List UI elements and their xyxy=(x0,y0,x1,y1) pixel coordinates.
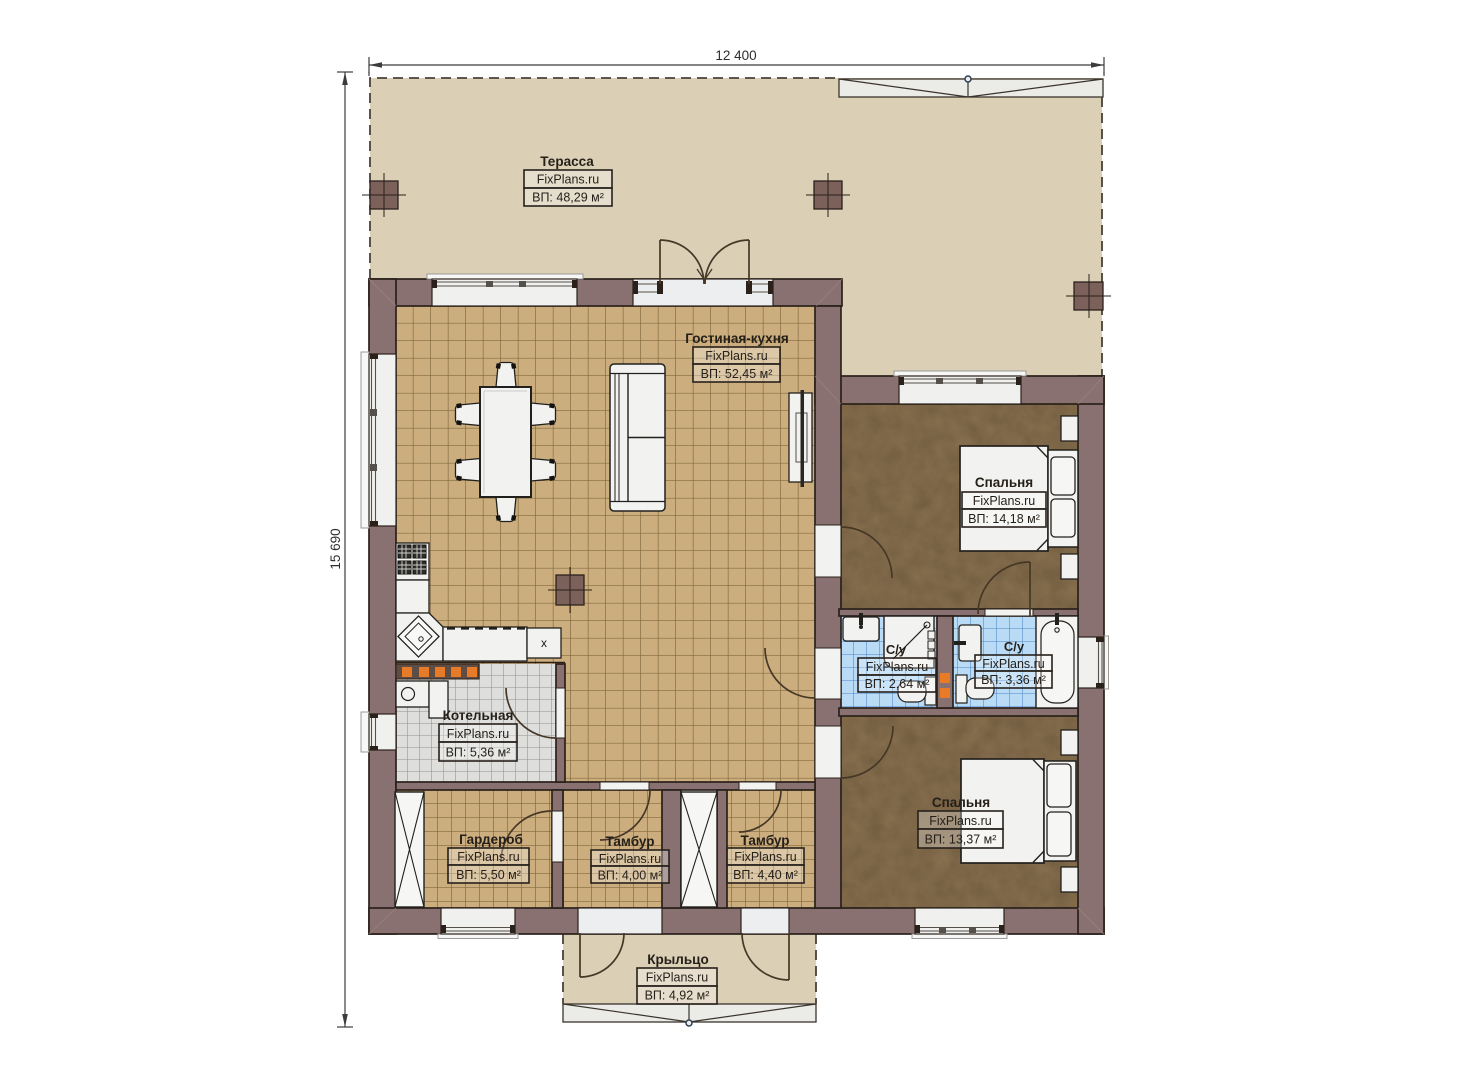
svg-text:С/у: С/у xyxy=(1004,639,1025,654)
svg-text:Терасса: Терасса xyxy=(540,154,594,169)
svg-text:FixPlans.ru: FixPlans.ru xyxy=(599,852,662,866)
svg-text:15 690: 15 690 xyxy=(328,528,343,569)
svg-text:Котельная: Котельная xyxy=(443,708,514,723)
svg-text:Тамбур: Тамбур xyxy=(606,834,655,849)
svg-text:FixPlans.ru: FixPlans.ru xyxy=(457,850,520,864)
svg-text:FixPlans.ru: FixPlans.ru xyxy=(973,494,1036,508)
svg-text:FixPlans.ru: FixPlans.ru xyxy=(537,173,600,187)
svg-text:FixPlans.ru: FixPlans.ru xyxy=(705,349,768,363)
svg-text:ВП: 4,40 м²: ВП: 4,40 м² xyxy=(733,868,798,882)
svg-text:Гостиная-кухня: Гостиная-кухня xyxy=(685,331,788,346)
svg-text:FixPlans.ru: FixPlans.ru xyxy=(447,727,510,741)
svg-text:12 400: 12 400 xyxy=(715,48,756,63)
svg-text:FixPlans.ru: FixPlans.ru xyxy=(982,657,1045,671)
svg-text:С/у: С/у xyxy=(886,642,907,657)
svg-text:Спальня: Спальня xyxy=(932,795,990,810)
svg-text:ВП: 4,00 м²: ВП: 4,00 м² xyxy=(598,869,663,883)
svg-text:Тамбур: Тамбур xyxy=(741,833,790,848)
svg-text:ВП: 52,45 м²: ВП: 52,45 м² xyxy=(701,367,773,381)
svg-text:ВП: 5,36 м²: ВП: 5,36 м² xyxy=(446,746,511,760)
svg-text:Крыльцо: Крыльцо xyxy=(647,952,708,967)
svg-text:FixPlans.ru: FixPlans.ru xyxy=(734,850,797,864)
svg-text:FixPlans.ru: FixPlans.ru xyxy=(929,814,992,828)
svg-text:ВП: 5,50 м²: ВП: 5,50 м² xyxy=(456,868,521,882)
svg-text:ВП: 4,92 м²: ВП: 4,92 м² xyxy=(645,989,710,1003)
svg-text:ВП: 13,37 м²: ВП: 13,37 м² xyxy=(925,833,997,847)
svg-text:FixPlans.ru: FixPlans.ru xyxy=(646,971,709,985)
svg-text:ВП: 14,18 м²: ВП: 14,18 м² xyxy=(968,512,1040,526)
svg-text:FixPlans.ru: FixPlans.ru xyxy=(866,660,929,674)
svg-text:Гардероб: Гардероб xyxy=(459,832,523,847)
svg-text:x: x xyxy=(541,636,547,650)
svg-text:ВП: 3,36 м²: ВП: 3,36 м² xyxy=(981,673,1046,687)
svg-text:ВП: 48,29 м²: ВП: 48,29 м² xyxy=(532,191,604,205)
svg-text:ВП: 2,64 м²: ВП: 2,64 м² xyxy=(865,677,930,691)
svg-text:Спальня: Спальня xyxy=(975,475,1033,490)
